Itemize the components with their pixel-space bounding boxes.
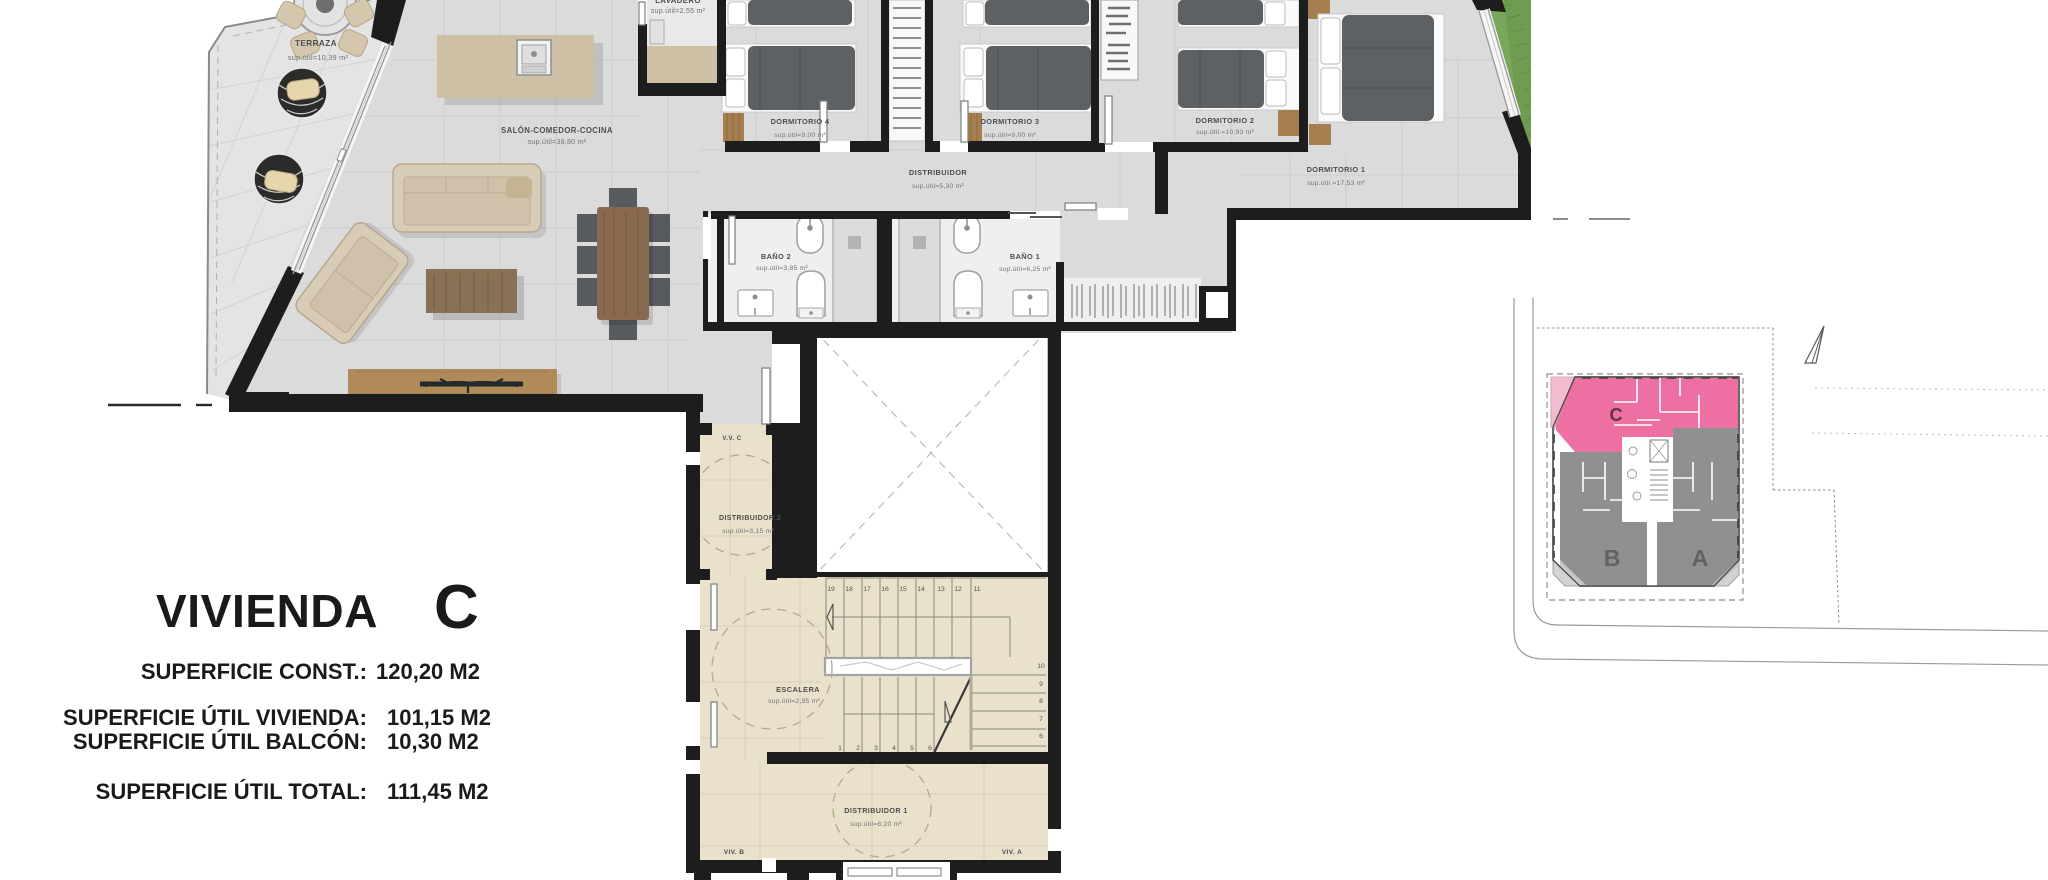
svg-text:101,15 M2: 101,15 M2 <box>387 705 491 730</box>
svg-text:12: 12 <box>954 586 962 593</box>
svg-text:10: 10 <box>1037 663 1045 670</box>
svg-text:13: 13 <box>937 586 945 593</box>
svg-text:14: 14 <box>917 586 925 593</box>
svg-text:sup.útil=3,15 m²: sup.útil=3,15 m² <box>722 528 774 535</box>
svg-text:7: 7 <box>1039 716 1043 723</box>
svg-text:sup.útil.=10,93 m²: sup.útil.=10,93 m² <box>1196 129 1254 136</box>
svg-text:SUPERFICIE CONST.:: SUPERFICIE CONST.: <box>141 659 367 684</box>
svg-text:VIV. B: VIV. B <box>724 849 745 856</box>
svg-text:sup.útil=8,20 m²: sup.útil=8,20 m² <box>850 821 902 828</box>
svg-text:SUPERFICIE ÚTIL BALCÓN:: SUPERFICIE ÚTIL BALCÓN: <box>73 729 367 754</box>
svg-text:C: C <box>1610 405 1623 425</box>
svg-text:TERRAZA: TERRAZA <box>295 39 337 48</box>
svg-text:sup.útil=5,30 m²: sup.útil=5,30 m² <box>912 183 964 190</box>
svg-text:9: 9 <box>1039 681 1043 688</box>
svg-text:SUPERFICIE ÚTIL VIVIENDA:: SUPERFICIE ÚTIL VIVIENDA: <box>63 705 367 730</box>
svg-text:ESCALERA: ESCALERA <box>776 685 820 694</box>
svg-text:DISTRIBUIDOR 2: DISTRIBUIDOR 2 <box>719 515 781 522</box>
svg-text:6: 6 <box>1039 733 1043 740</box>
svg-text:11: 11 <box>973 586 980 593</box>
svg-text:BAÑO 2: BAÑO 2 <box>761 252 791 261</box>
svg-text:C: C <box>434 573 479 642</box>
svg-text:SALÓN-COMEDOR-COCINA: SALÓN-COMEDOR-COCINA <box>501 126 613 135</box>
svg-text:sup.útil=3,85 m²: sup.útil=3,85 m² <box>756 265 808 272</box>
svg-text:DORMITORIO 4: DORMITORIO 4 <box>771 117 830 126</box>
svg-text:A: A <box>1692 545 1709 571</box>
svg-text:4: 4 <box>892 745 896 752</box>
svg-text:120,20 M2: 120,20 M2 <box>376 659 480 684</box>
svg-text:sup.útil=2,95 m²: sup.útil=2,95 m² <box>768 698 820 705</box>
svg-text:16: 16 <box>881 586 889 593</box>
svg-text:VIV. A: VIV. A <box>1002 849 1022 856</box>
svg-text:3: 3 <box>874 745 878 752</box>
svg-text:sup.útil=9,00 m²: sup.útil=9,00 m² <box>984 132 1036 139</box>
svg-text:SUPERFICIE ÚTIL TOTAL:: SUPERFICIE ÚTIL TOTAL: <box>96 779 367 804</box>
svg-text:sup.útil=2,55 m²: sup.útil=2,55 m² <box>651 6 706 15</box>
svg-text:sup.útil.=17,53 m²: sup.útil.=17,53 m² <box>1307 180 1365 187</box>
svg-text:sup.útil=6,25 m²: sup.útil=6,25 m² <box>999 266 1051 273</box>
svg-text:sup.útil=10,39 m²: sup.útil=10,39 m² <box>288 53 349 62</box>
svg-text:6: 6 <box>928 745 932 752</box>
svg-text:DISTRIBUIDOR: DISTRIBUIDOR <box>909 168 967 177</box>
svg-text:15: 15 <box>899 586 907 593</box>
svg-text:5: 5 <box>910 745 914 752</box>
svg-text:V.V. C: V.V. C <box>722 435 741 442</box>
svg-text:DISTRIBUIDOR 1: DISTRIBUIDOR 1 <box>844 806 908 815</box>
svg-text:2: 2 <box>856 745 860 752</box>
svg-text:sup.útil=9,00 m²: sup.útil=9,00 m² <box>774 132 826 139</box>
svg-text:17: 17 <box>863 586 871 593</box>
svg-text:1: 1 <box>838 745 842 752</box>
svg-text:DORMITORIO 1: DORMITORIO 1 <box>1307 165 1366 174</box>
svg-text:sup.útil=38,80 m²: sup.útil=38,80 m² <box>528 137 587 146</box>
svg-text:BAÑO 1: BAÑO 1 <box>1010 252 1040 261</box>
svg-text:18: 18 <box>845 586 853 593</box>
svg-text:19: 19 <box>827 586 835 593</box>
svg-text:111,45 M2: 111,45 M2 <box>387 779 489 804</box>
svg-text:10,30 M2: 10,30 M2 <box>387 729 479 754</box>
svg-text:DORMITORIO 2: DORMITORIO 2 <box>1196 116 1255 125</box>
svg-text:DORMITORIO 3: DORMITORIO 3 <box>981 117 1040 126</box>
svg-text:B: B <box>1604 545 1621 571</box>
svg-text:LAVADERO: LAVADERO <box>655 0 701 5</box>
svg-text:VIVIENDA: VIVIENDA <box>156 585 378 637</box>
svg-text:8: 8 <box>1039 698 1043 705</box>
